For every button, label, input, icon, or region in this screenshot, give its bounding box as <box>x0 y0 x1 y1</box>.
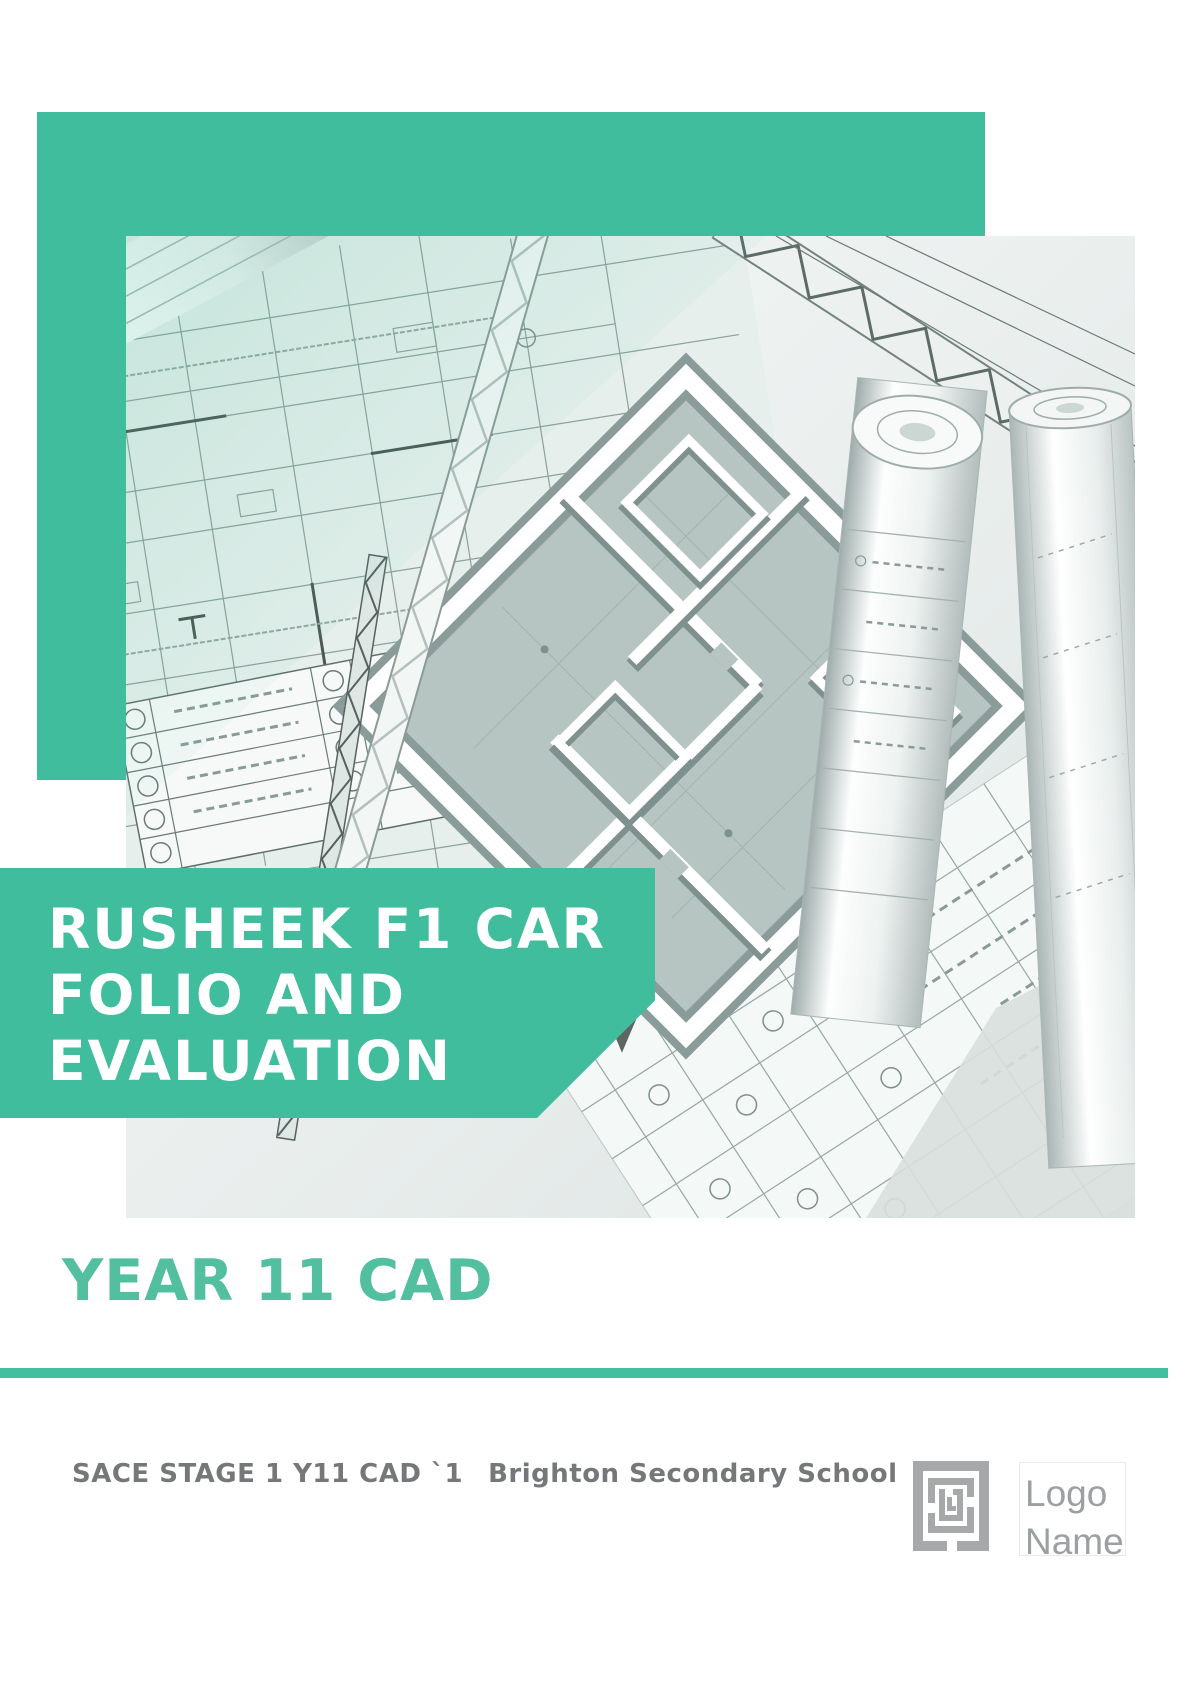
course-title: SACE STAGE 1 Y11 CAD `1 <box>72 1459 463 1489</box>
logo-placeholder-icon <box>913 1461 989 1551</box>
divider-line <box>0 1368 1168 1378</box>
logo-name-line-2: Name <box>1025 1518 1124 1566</box>
document-title-line-3: EVALUATION <box>48 1028 606 1094</box>
logo-name-line-1: Logo <box>1025 1470 1124 1518</box>
cover-page: RUSHEEK F1 CAR FOLIO AND EVALUATION YEAR… <box>0 0 1200 1698</box>
subtitle-heading: YEAR 11 CAD <box>62 1253 494 1310</box>
school-name: Brighton Secondary School <box>488 1459 897 1489</box>
logo-name-text: Logo Name <box>1025 1470 1124 1566</box>
footer-text: SACE STAGE 1 Y11 CAD `1Brighton Secondar… <box>72 1459 898 1490</box>
title-banner: RUSHEEK F1 CAR FOLIO AND EVALUATION <box>0 868 655 1118</box>
document-title-line-2: FOLIO AND <box>48 962 606 1028</box>
document-title: RUSHEEK F1 CAR FOLIO AND EVALUATION <box>48 896 606 1094</box>
document-title-line-1: RUSHEEK F1 CAR <box>48 896 606 962</box>
